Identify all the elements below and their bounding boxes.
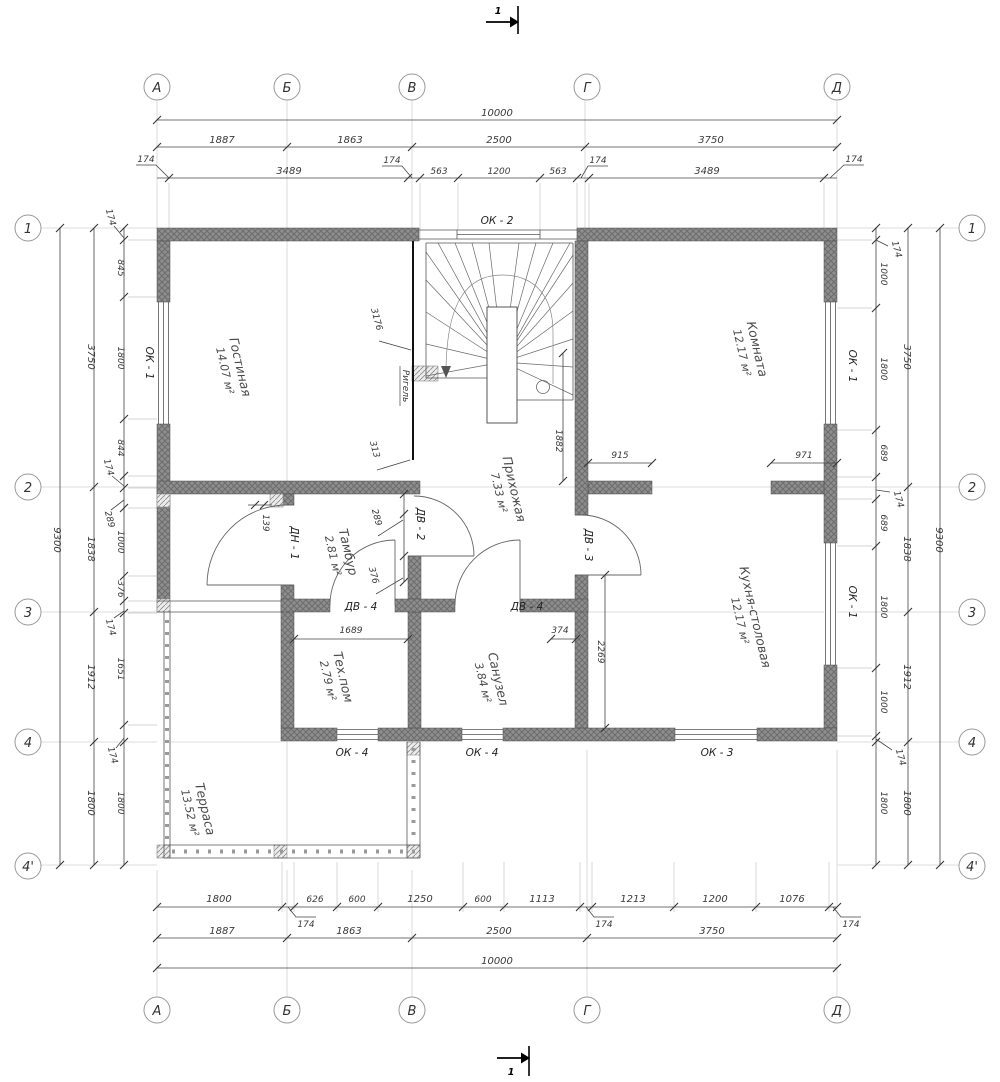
floor-plan-page: 10000 1887 1863 2500 3750 3489 563 1200 … xyxy=(0,0,1000,1082)
window-ok1-right-bottom xyxy=(826,543,836,665)
dim-label: 1000 xyxy=(878,263,888,286)
dim-label: 313 xyxy=(367,440,381,459)
dim-label: 600 xyxy=(474,895,491,905)
window-label: ОК - 1 xyxy=(143,347,155,380)
dim-label: 174 xyxy=(893,748,907,767)
section-marker-bottom: 1 xyxy=(497,1046,530,1078)
dim-label: 915 xyxy=(611,451,628,461)
dim-label: 844 xyxy=(115,439,125,456)
axis-label: 4' xyxy=(22,860,34,875)
room-label-prihozhaya: Прихожая7.33 м² xyxy=(485,455,529,527)
axis-label: Д xyxy=(831,81,842,96)
dim-label: 1887 xyxy=(209,926,235,937)
dim-label: 1882 xyxy=(553,430,563,453)
window-ok4-a xyxy=(337,730,378,740)
dim-label: 3489 xyxy=(694,166,719,177)
axis-label: А xyxy=(152,1004,162,1019)
dim-label: 1000 xyxy=(878,691,888,714)
room-label-gostinaya: Гостиная14.07 м² xyxy=(212,336,255,402)
staircase xyxy=(413,241,573,460)
dim-label: 174 xyxy=(383,156,400,166)
dim-label: 174 xyxy=(137,155,154,165)
axis-label: 2 xyxy=(968,481,976,496)
axis-label: 4' xyxy=(966,860,978,875)
window-ok2 xyxy=(419,230,577,239)
dim-label: 3750 xyxy=(698,135,723,146)
dim-label: 174 xyxy=(105,746,119,765)
dim-label: 3750 xyxy=(699,926,724,937)
dim-label: 1076 xyxy=(779,894,804,905)
window-label: ОК - 1 xyxy=(846,586,858,619)
dim-label: 1800 xyxy=(878,358,888,381)
dim-label: 1863 xyxy=(336,926,361,937)
dim-label: 174 xyxy=(595,920,612,930)
section-label: 1 xyxy=(508,1067,515,1078)
dim-label: 600 xyxy=(348,895,365,905)
axis-label: 4 xyxy=(24,736,32,751)
axis-label: В xyxy=(408,1004,417,1019)
dim-label: 139 xyxy=(260,514,270,531)
axis-label: Б xyxy=(283,81,292,96)
dimension-extension-lines xyxy=(128,183,872,912)
door-label: ДВ - 4 xyxy=(510,601,544,613)
room-label-tehpom: Тех.пом2.79 м² xyxy=(316,650,357,707)
dim-label: 689 xyxy=(878,514,888,531)
dim-label: 289 xyxy=(369,508,383,527)
dim-label: 1838 xyxy=(85,536,96,561)
dim-label: 174 xyxy=(891,490,905,509)
dimension-lines xyxy=(56,116,944,972)
axis-label: А xyxy=(152,81,162,96)
dim-label: 9300 xyxy=(933,527,944,552)
axis-label: 1 xyxy=(968,222,976,237)
room-label-terrasa: Терраса13.52 м² xyxy=(177,781,218,840)
axis-label: 2 xyxy=(24,481,32,496)
room-label-kuhnya: Кухня-столовая12.17 м² xyxy=(722,565,775,673)
dim-label: 9300 xyxy=(51,527,62,552)
dim-label: 3750 xyxy=(85,344,96,369)
dim-label: 1113 xyxy=(529,894,554,905)
window-ok3 xyxy=(675,730,757,740)
axis-label: В xyxy=(408,81,417,96)
room-labels: Гостиная14.07 м² Комната12.17 м² Прихожа… xyxy=(177,320,774,840)
dim-label: 10000 xyxy=(481,956,513,967)
dim-label: 1863 xyxy=(337,135,362,146)
dim-label: 174 xyxy=(589,156,606,166)
dim-label: 174 xyxy=(103,618,117,637)
dim-label: 3176 xyxy=(368,307,384,332)
dim-label: 1912 xyxy=(85,664,96,689)
window-ok1-right-top xyxy=(826,302,836,424)
dim-label: 1200 xyxy=(702,894,727,905)
dim-label: 10000 xyxy=(481,108,513,119)
dim-label: 1800 xyxy=(115,792,125,815)
dim-label: 1800 xyxy=(85,790,96,815)
dim-label: 1651 xyxy=(115,658,125,681)
dim-label: 1800 xyxy=(878,792,888,815)
dim-label: 1800 xyxy=(878,596,888,619)
dim-label: 174 xyxy=(889,240,903,259)
dim-label: 1912 xyxy=(901,664,912,689)
room-label-komnata: Комната12.17 м² xyxy=(729,320,771,382)
door-dv4-sanuzel xyxy=(455,540,520,605)
axis-label: Д xyxy=(831,1004,842,1019)
stair-pole-symbol xyxy=(537,381,550,394)
dim-label: 174 xyxy=(103,208,117,227)
dim-label: 3489 xyxy=(276,166,301,177)
room-label-tambur: Тамбур2.81 м² xyxy=(321,527,361,580)
dim-label: 845 xyxy=(115,259,125,276)
dim-label: 2269 xyxy=(595,641,605,664)
door-label: ДН - 1 xyxy=(288,525,300,559)
dim-label: 689 xyxy=(878,444,888,461)
section-marker-top: 1 xyxy=(486,6,519,34)
dim-label: 3750 xyxy=(901,344,912,369)
window-ok4-b xyxy=(462,730,503,740)
beam-label: Ригель xyxy=(400,370,410,403)
dim-label: 1689 xyxy=(340,626,363,636)
axis-label: 1 xyxy=(24,222,32,237)
dim-label: 971 xyxy=(795,451,812,461)
dim-label: 1887 xyxy=(209,135,235,146)
axis-label: Б xyxy=(283,1004,292,1019)
beam-label-group: Ригель xyxy=(400,366,410,406)
dim-label: 1200 xyxy=(488,167,511,177)
section-label: 1 xyxy=(495,6,502,17)
dim-label: 1800 xyxy=(115,347,125,370)
dim-label: 626 xyxy=(306,895,323,905)
dim-label: 1800 xyxy=(206,894,231,905)
dim-label: 1250 xyxy=(407,894,432,905)
dim-label: 174 xyxy=(845,155,862,165)
dim-label: 376 xyxy=(115,580,125,597)
window-label: ОК - 2 xyxy=(481,215,514,227)
stair-well xyxy=(487,307,517,423)
axis-label: 3 xyxy=(968,606,976,621)
dim-label: 1213 xyxy=(620,894,645,905)
axis-label: 3 xyxy=(24,606,32,621)
dim-label: 2500 xyxy=(486,135,511,146)
door-dn1 xyxy=(207,505,294,585)
dim-label: 174 xyxy=(297,920,314,930)
dim-label: 2500 xyxy=(486,926,511,937)
window-label: ОК - 4 xyxy=(336,747,369,759)
window-label: ОК - 1 xyxy=(846,350,858,383)
dim-label: 1000 xyxy=(115,531,125,554)
room-label-sanuzel: Санузел3.84 м² xyxy=(470,651,511,711)
window-ok1-left xyxy=(159,302,169,424)
dim-label: 563 xyxy=(549,167,566,177)
dim-label: 289 xyxy=(102,510,116,529)
dim-label: 1838 xyxy=(901,536,912,561)
beam-block xyxy=(412,366,438,381)
window-label: ОК - 3 xyxy=(701,747,734,759)
door-label: ДВ - 4 xyxy=(344,601,378,613)
door-label: ДВ - 2 xyxy=(414,507,426,541)
axis-label: 4 xyxy=(968,736,976,751)
dim-label: 376 xyxy=(366,566,380,585)
dim-label: 374 xyxy=(551,626,568,636)
dim-label: 174 xyxy=(101,458,115,477)
door-label: ДВ - 3 xyxy=(582,528,594,562)
dim-label: 174 xyxy=(842,920,859,930)
dim-label: 1800 xyxy=(901,790,912,815)
dim-label: 563 xyxy=(430,167,447,177)
floor-plan-canvas: 10000 1887 1863 2500 3750 3489 563 1200 … xyxy=(0,0,1000,1082)
window-label: ОК - 4 xyxy=(466,747,499,759)
